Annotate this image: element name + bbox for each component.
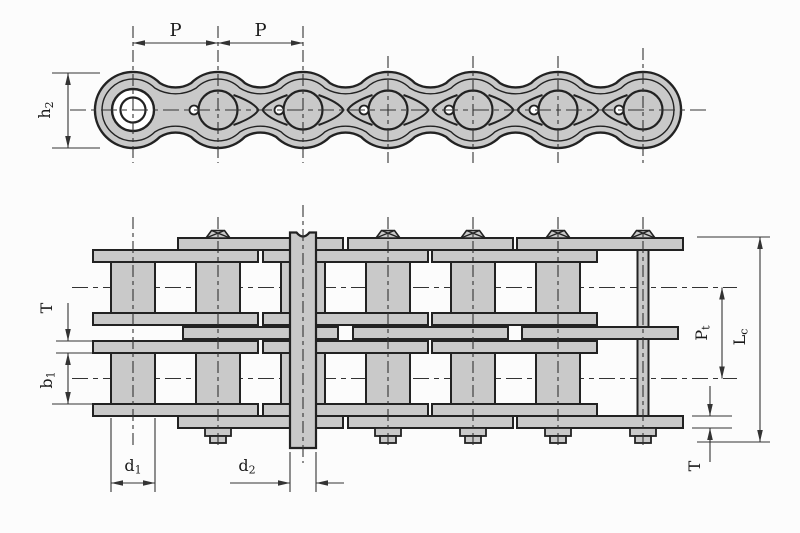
plan-view: T b1 d1 d2 Pt — [37, 205, 770, 492]
label-d1: d1 — [124, 456, 141, 477]
dimension-t-left: T — [37, 302, 92, 353]
drawing-canvas: P P h2 — [0, 0, 800, 533]
label-pt: Pt — [692, 325, 713, 341]
label-b1: b1 — [37, 371, 58, 388]
label-t-left: T — [37, 302, 56, 313]
dimension-d1: d1 — [111, 418, 155, 492]
dimension-t-right: T — [685, 386, 732, 471]
pin-tabs — [205, 428, 656, 443]
dimension-h2: h2 — [35, 73, 100, 148]
label-pitch-1: P — [169, 20, 181, 41]
label-lc: Lc — [730, 329, 751, 346]
label-d2: d2 — [238, 456, 255, 477]
roller-chain-technical-drawing: P P h2 — [0, 0, 800, 533]
side-view: P P h2 — [35, 20, 706, 163]
dimension-d2: d2 — [230, 452, 344, 492]
label-t-right: T — [685, 460, 704, 471]
rivet-marks — [206, 231, 655, 239]
dimension-pt: Pt — [692, 288, 725, 379]
label-pitch-2: P — [254, 20, 266, 41]
outer-link-plates — [178, 238, 683, 428]
rollers-plan — [111, 262, 580, 404]
label-h2: h2 — [35, 101, 56, 118]
